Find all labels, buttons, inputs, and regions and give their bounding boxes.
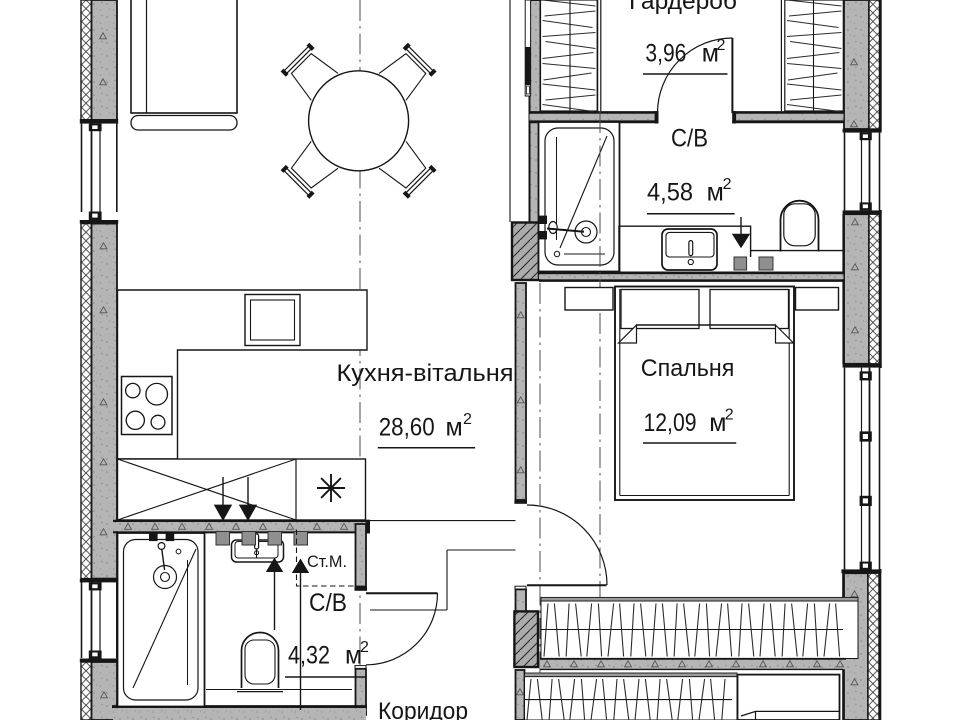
svg-text:С/В: С/В [309,589,347,617]
svg-text:4,58: 4,58 [647,179,693,207]
svg-text:Гардероб: Гардероб [629,0,737,15]
svg-text:2: 2 [463,411,472,428]
svg-text:4,32: 4,32 [288,642,330,670]
svg-text:2: 2 [723,176,732,193]
svg-text:2: 2 [725,406,734,423]
svg-text:12,09: 12,09 [644,409,697,437]
svg-text:3,96: 3,96 [645,40,686,68]
svg-text:Кухня-вітальня: Кухня-вітальня [337,360,514,387]
svg-text:м: м [709,409,726,437]
svg-text:С/В: С/В [671,125,708,153]
svg-text:м: м [707,179,724,207]
svg-text:Ст.М.: Ст.М. [307,553,347,571]
svg-text:2: 2 [360,639,369,656]
svg-text:Спальня: Спальня [641,355,735,382]
svg-text:28,60: 28,60 [379,413,435,441]
svg-text:м: м [446,413,463,441]
svg-text:Коридор: Коридор [378,698,468,720]
svg-text:2: 2 [717,37,726,54]
